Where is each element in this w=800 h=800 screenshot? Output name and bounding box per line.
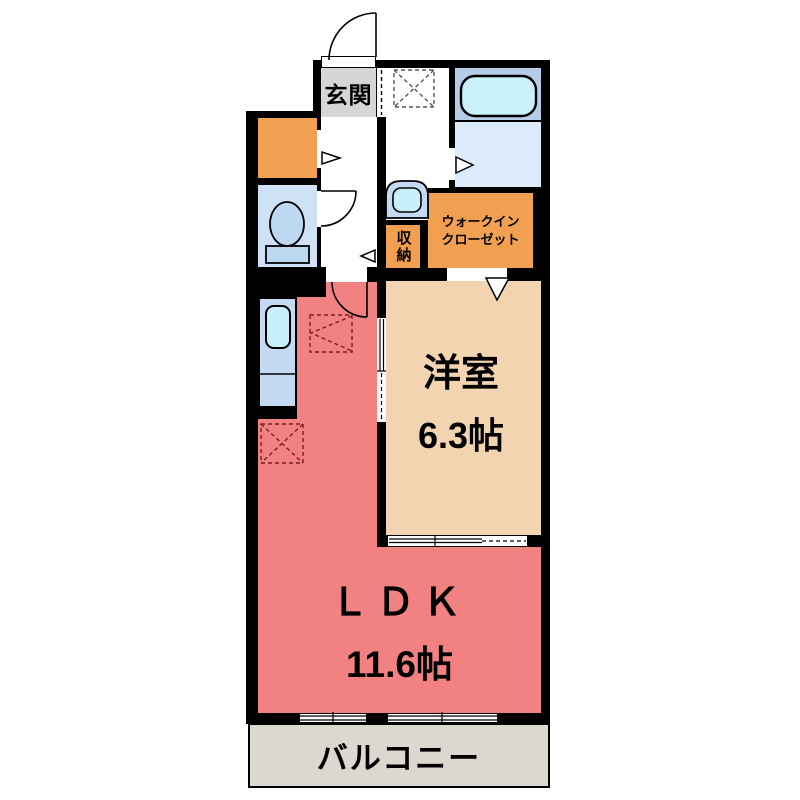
genkan-label: 玄関 [321,68,376,117]
storage-closet [258,118,317,178]
hallway [321,117,377,267]
window-left [300,714,366,722]
balcony-label: バルコニー [248,723,550,788]
kitchen-counter-end-panel [258,408,297,419]
sliding-door-vertical-strip [377,318,386,422]
western-room-label: 洋室 6.3帖 [386,338,536,463]
genkan-washroom-door-strip [377,68,386,117]
floor-plan: 玄関 収納 ウォークイン クローゼット 洋室 6.3帖 ＬＤＫ 11.6帖 バル… [0,0,800,800]
ldk-label: ＬＤＫ 11.6帖 [258,572,541,687]
entrance-threshold [321,56,376,68]
toilet-door-gap [317,191,321,227]
bath-tub-zone [455,68,541,122]
bath-door-gap [449,148,455,180]
room-toilet [258,185,317,268]
sliding-door-horizontal-strip [388,536,527,546]
ldk-door-gap [326,267,367,282]
building-notch [246,52,313,111]
wic-door-gap [447,268,507,281]
kitchen-sink [265,305,291,349]
kitchen-wall-stub [258,267,326,297]
wic-label: ウォークイン クローゼット [428,193,533,268]
storage-closet-door-gap [317,130,321,168]
entrance-door-arc [329,13,376,60]
room-washroom-alcove [386,188,428,220]
window-right [388,714,497,722]
room-washroom [386,68,449,188]
shuno-label: 収納 [386,225,420,268]
